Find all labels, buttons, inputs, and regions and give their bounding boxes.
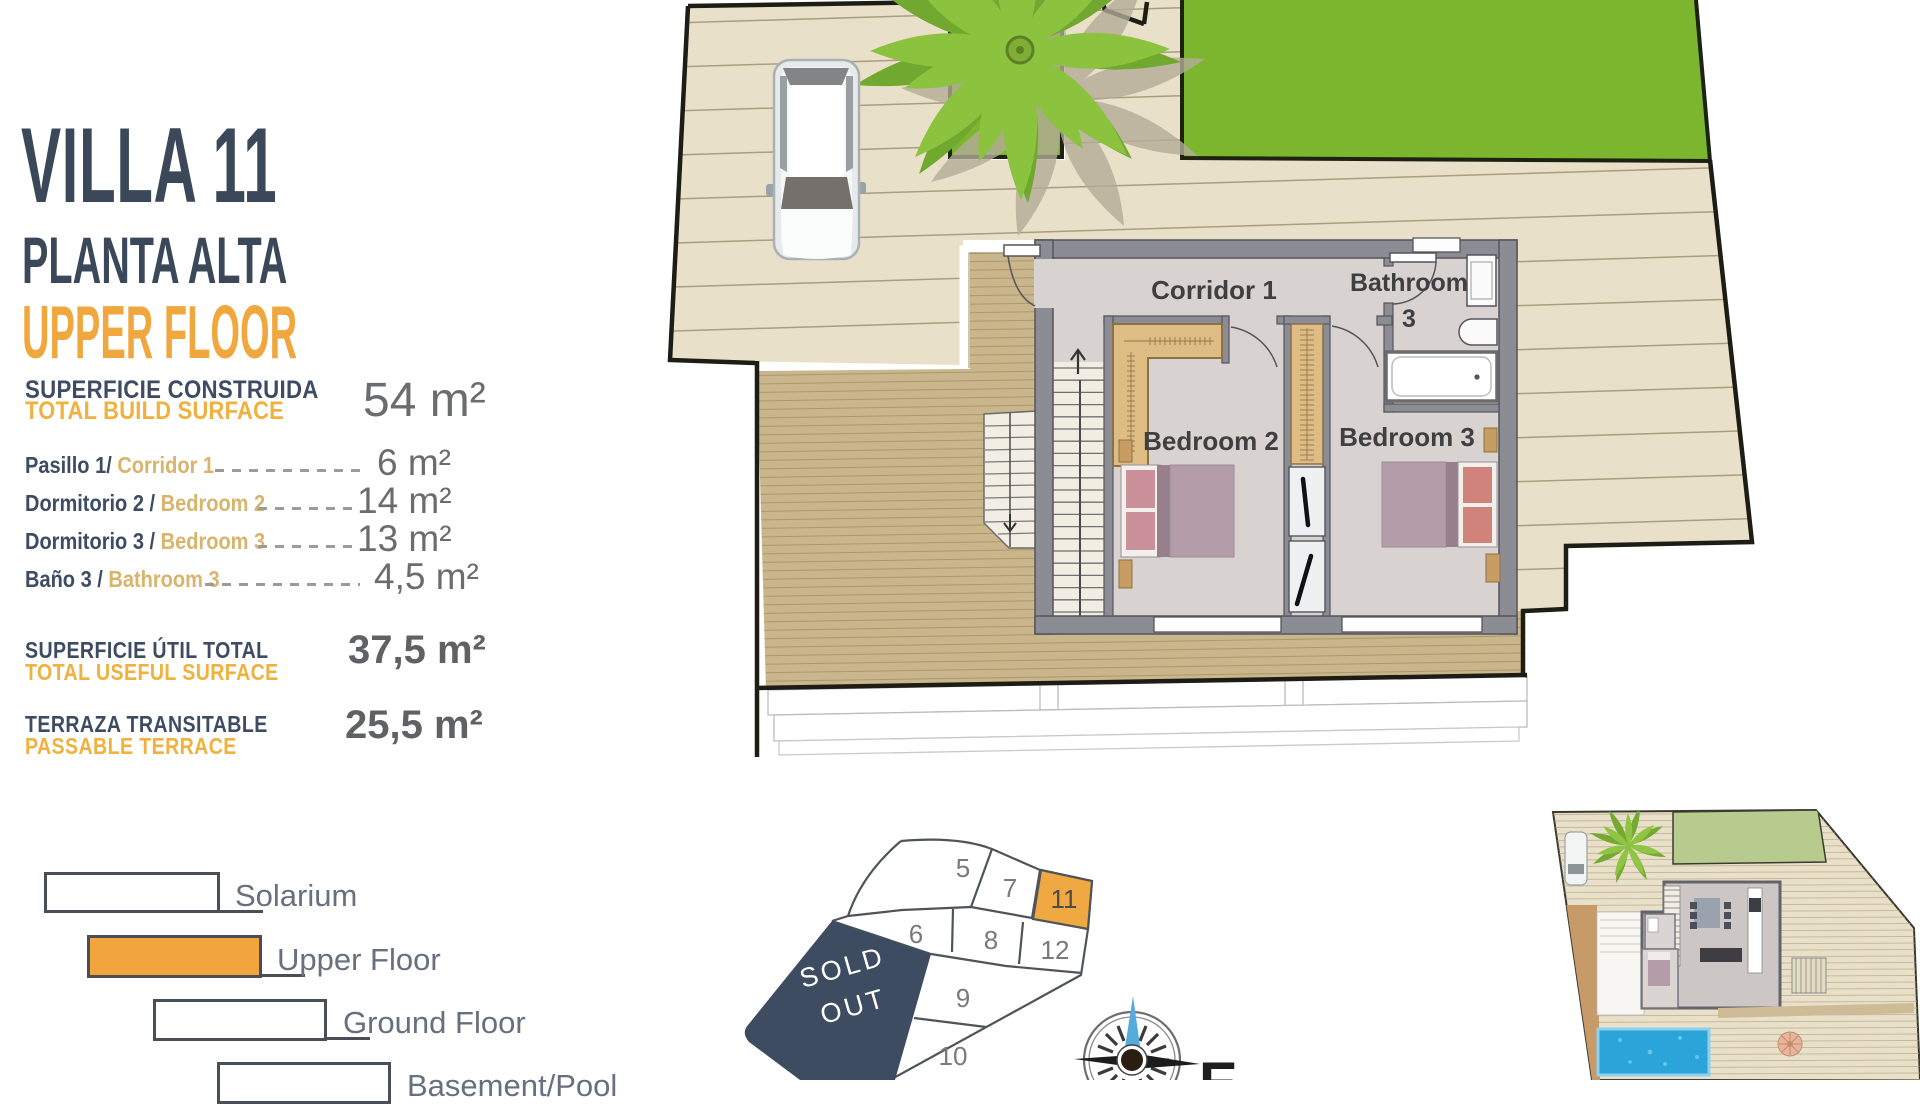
svg-text:Bedroom 2: Bedroom 2 — [1143, 426, 1279, 456]
svg-text:Corridor 1: Corridor 1 — [1151, 275, 1277, 305]
svg-text:7: 7 — [1003, 873, 1017, 903]
svg-text:11: 11 — [1051, 884, 1078, 914]
svg-text:8: 8 — [984, 925, 998, 955]
svg-text:9: 9 — [956, 983, 970, 1013]
svg-text:5: 5 — [956, 853, 970, 883]
svg-text:3: 3 — [1402, 305, 1416, 333]
svg-text:Bedroom 3: Bedroom 3 — [1339, 422, 1475, 452]
svg-text:Bathroom: Bathroom — [1350, 269, 1468, 297]
svg-text:10: 10 — [939, 1041, 968, 1071]
svg-text:E: E — [1199, 1051, 1238, 1080]
svg-text:6: 6 — [909, 919, 923, 949]
svg-text:12: 12 — [1041, 935, 1070, 965]
